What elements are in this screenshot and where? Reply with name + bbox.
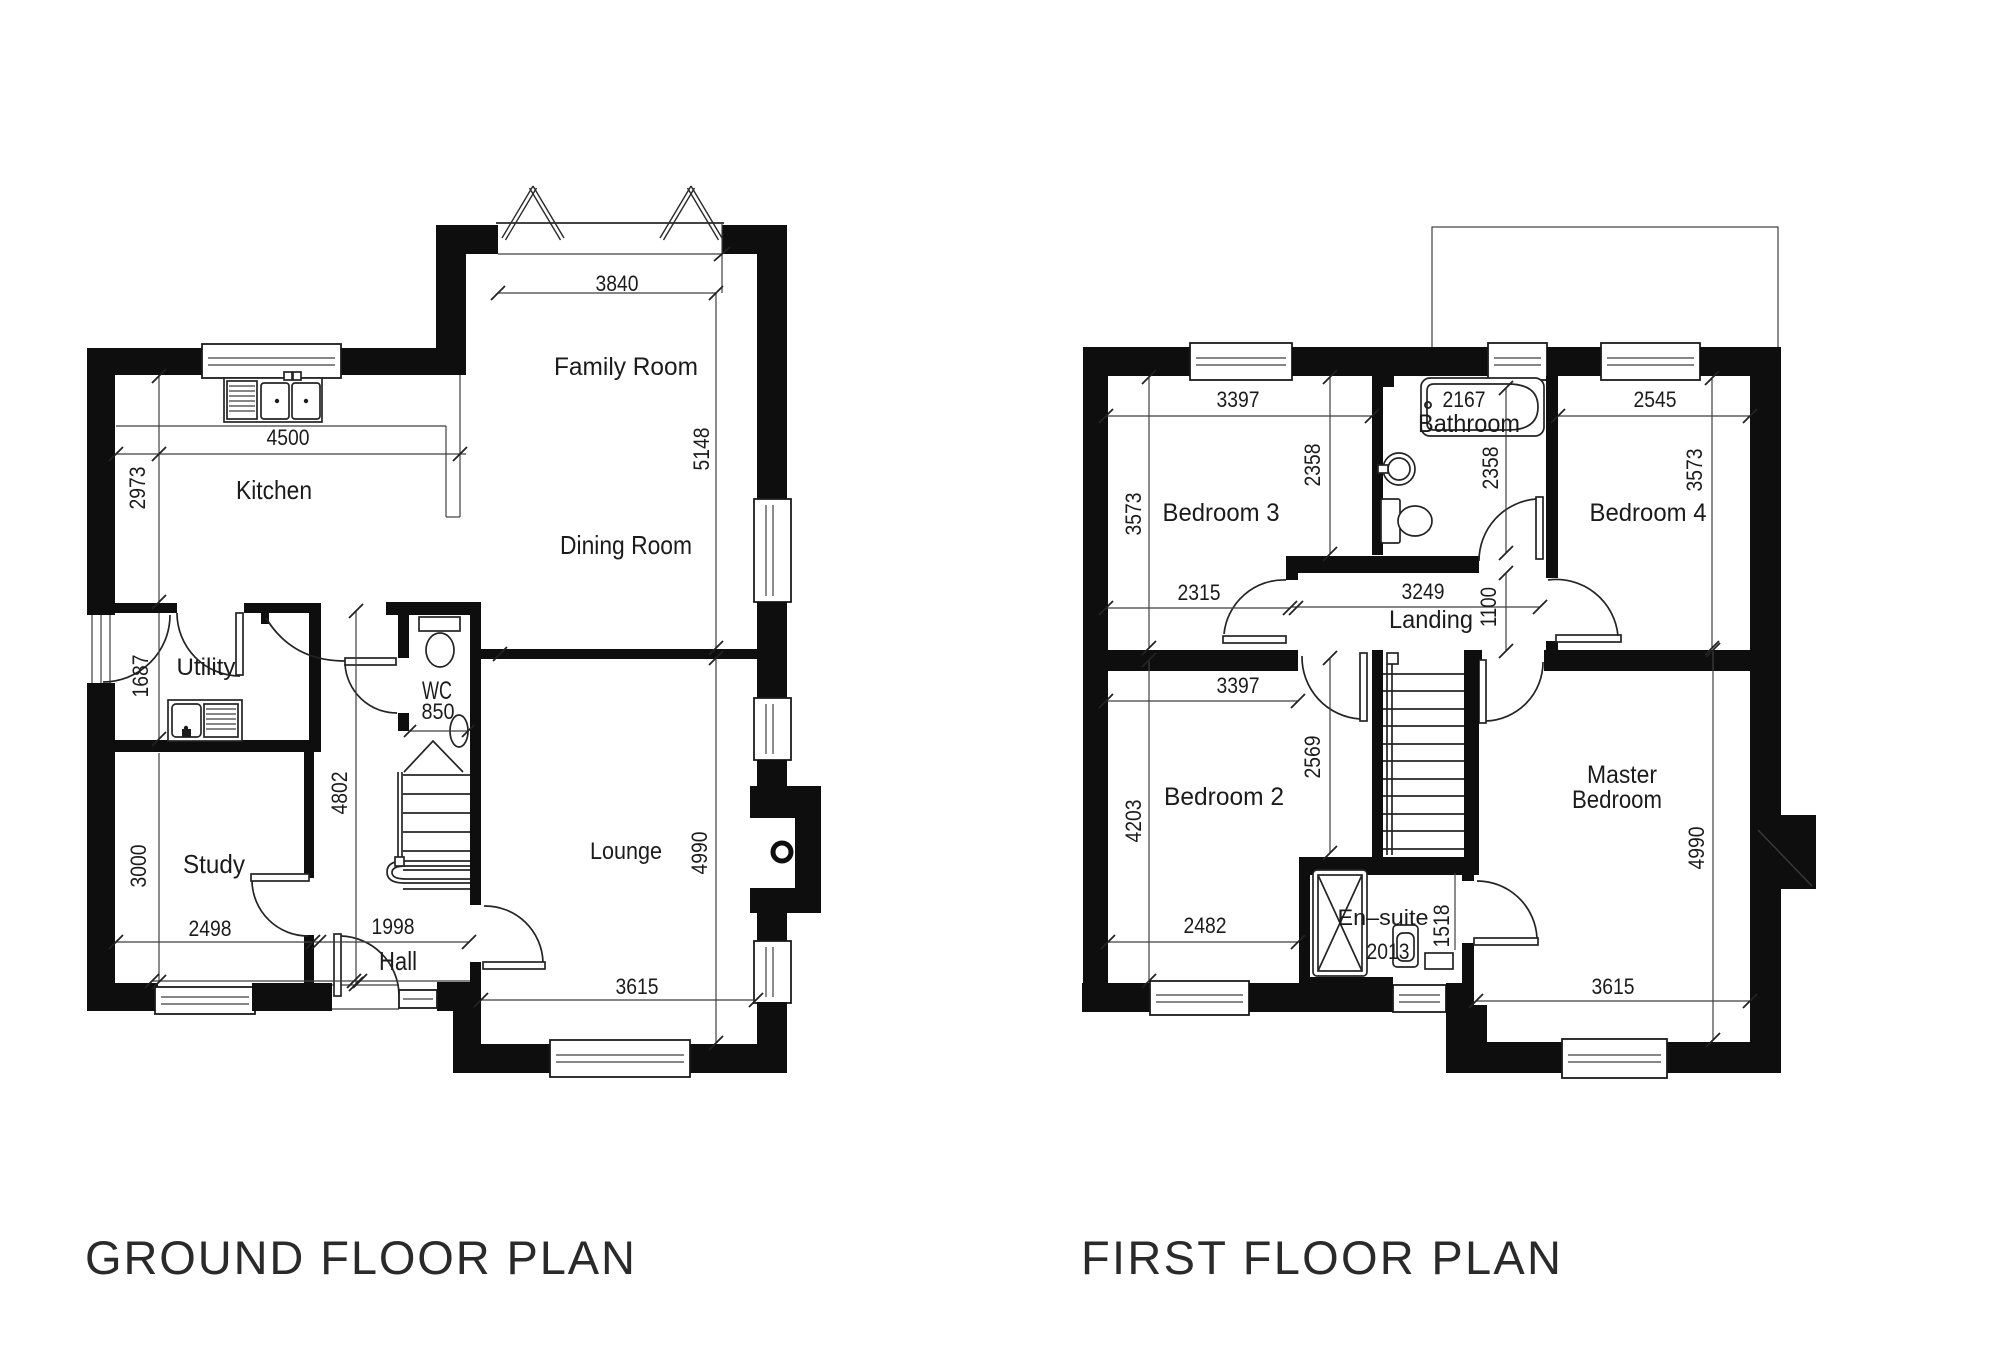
- svg-text:4203: 4203: [1121, 800, 1146, 843]
- svg-text:Bedroom: Bedroom: [1572, 786, 1662, 814]
- svg-text:3397: 3397: [1217, 673, 1260, 698]
- svg-text:Bathroom: Bathroom: [1418, 410, 1520, 438]
- svg-text:Lounge: Lounge: [590, 838, 662, 865]
- svg-text:4990: 4990: [1684, 827, 1709, 870]
- svg-text:2482: 2482: [1184, 913, 1227, 938]
- svg-text:1998: 1998: [372, 914, 415, 939]
- svg-text:2315: 2315: [1178, 580, 1221, 605]
- svg-text:4802: 4802: [327, 772, 352, 815]
- svg-text:Study: Study: [183, 849, 245, 879]
- svg-text:2569: 2569: [1300, 736, 1325, 779]
- svg-text:GROUND FLOOR PLAN: GROUND FLOOR PLAN: [85, 1231, 635, 1284]
- svg-text:2545: 2545: [1634, 387, 1677, 412]
- svg-text:2498: 2498: [189, 916, 232, 941]
- svg-text:FIRST FLOOR PLAN: FIRST FLOOR PLAN: [1081, 1231, 1561, 1284]
- svg-text:850: 850: [422, 699, 455, 724]
- svg-text:4990: 4990: [687, 832, 712, 875]
- svg-text:5148: 5148: [689, 428, 714, 471]
- svg-text:1518: 1518: [1429, 905, 1454, 948]
- svg-text:Bedroom 4: Bedroom 4: [1590, 499, 1707, 527]
- svg-text:Dining Room: Dining Room: [560, 530, 692, 560]
- svg-text:2167: 2167: [1443, 387, 1486, 412]
- svg-text:3615: 3615: [616, 974, 659, 999]
- svg-text:Utility: Utility: [177, 654, 236, 681]
- svg-text:Hall: Hall: [379, 946, 417, 976]
- svg-text:1687: 1687: [128, 655, 153, 698]
- svg-text:2013: 2013: [1367, 939, 1410, 964]
- svg-text:3840: 3840: [596, 271, 639, 296]
- svg-text:4500: 4500: [267, 425, 310, 450]
- svg-text:2973: 2973: [125, 467, 150, 510]
- svg-text:Master: Master: [1587, 761, 1657, 789]
- svg-text:3615: 3615: [1592, 974, 1635, 999]
- svg-text:1100: 1100: [1476, 587, 1501, 627]
- svg-text:Landing: Landing: [1389, 606, 1473, 634]
- svg-text:3573: 3573: [1121, 493, 1146, 536]
- svg-text:Family Room: Family Room: [554, 353, 698, 381]
- svg-text:En–suite: En–suite: [1338, 905, 1429, 930]
- svg-text:3249: 3249: [1402, 579, 1445, 604]
- svg-text:2358: 2358: [1478, 447, 1503, 490]
- svg-text:2358: 2358: [1300, 444, 1325, 487]
- svg-text:3397: 3397: [1217, 387, 1260, 412]
- svg-text:3000: 3000: [126, 845, 151, 888]
- svg-text:Bedroom 2: Bedroom 2: [1164, 783, 1284, 811]
- svg-text:Bedroom 3: Bedroom 3: [1163, 499, 1280, 527]
- svg-text:3573: 3573: [1682, 449, 1707, 492]
- svg-text:Kitchen: Kitchen: [236, 475, 312, 505]
